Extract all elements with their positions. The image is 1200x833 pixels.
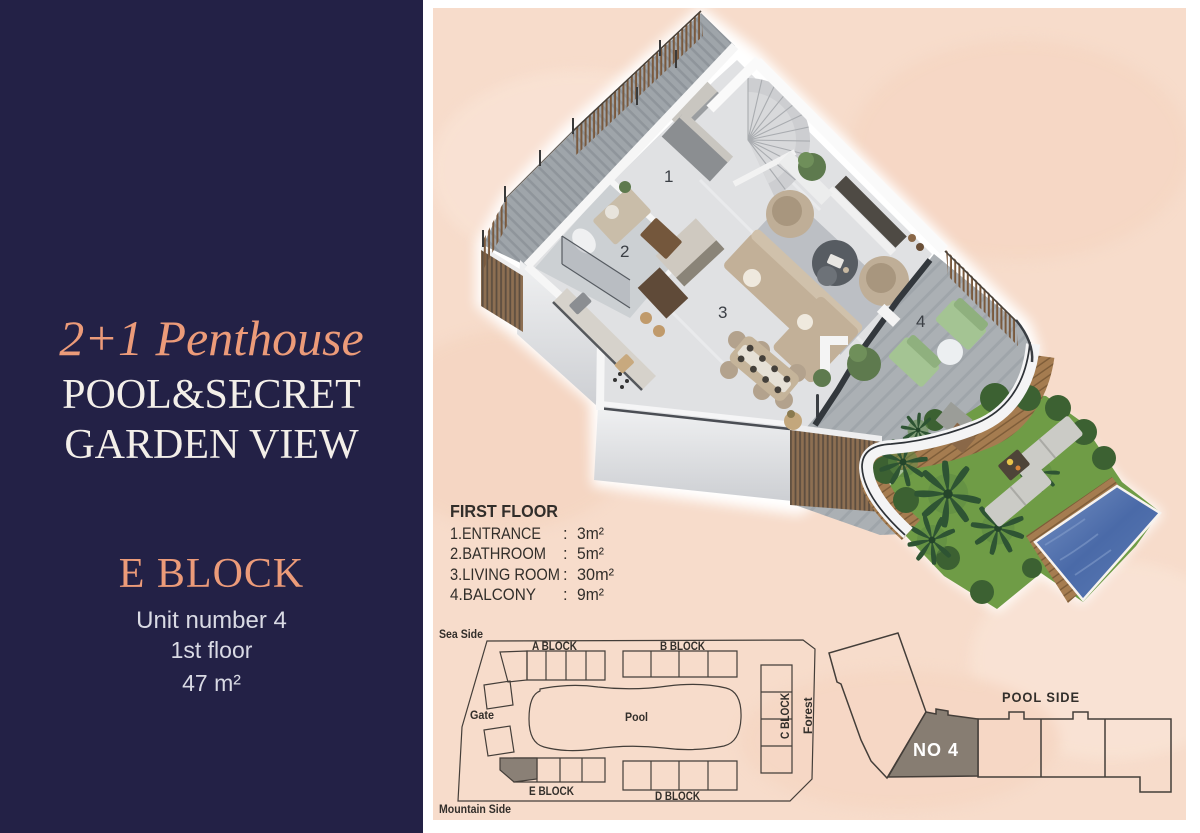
svg-text:NO 4: NO 4	[913, 740, 959, 760]
svg-text:4.BALCONY: 4.BALCONY	[450, 586, 536, 604]
svg-text::: :	[563, 525, 568, 543]
svg-text:B BLOCK: B BLOCK	[660, 641, 706, 653]
svg-text:9m²: 9m²	[577, 586, 604, 604]
svg-text:Forest: Forest	[801, 697, 815, 734]
svg-text:3.LIVING ROOM: 3.LIVING ROOM	[450, 566, 560, 584]
svg-text:1: 1	[664, 167, 673, 186]
svg-text:Gate: Gate	[470, 708, 494, 722]
svg-text::: :	[563, 586, 568, 604]
svg-text::: :	[563, 566, 568, 584]
svg-text:FIRST FLOOR: FIRST FLOOR	[450, 501, 558, 521]
svg-text:Sea Side: Sea Side	[439, 627, 483, 641]
svg-text:E BLOCK: E BLOCK	[529, 786, 575, 798]
svg-text:A BLOCK: A BLOCK	[532, 641, 578, 653]
svg-text:2: 2	[620, 242, 629, 261]
svg-text:3m²: 3m²	[577, 525, 604, 543]
svg-text:3: 3	[718, 303, 727, 322]
svg-text:30m²: 30m²	[577, 566, 614, 584]
svg-text:D BLOCK: D BLOCK	[655, 791, 701, 803]
svg-text:4: 4	[916, 312, 925, 331]
svg-text:POOL SIDE: POOL SIDE	[1002, 689, 1080, 705]
svg-text:5m²: 5m²	[577, 545, 604, 563]
svg-text::: :	[563, 545, 568, 563]
svg-text:C BLOCK: C BLOCK	[780, 692, 792, 739]
svg-text:1.ENTRANCE: 1.ENTRANCE	[450, 525, 541, 543]
svg-text:2.BATHROOM: 2.BATHROOM	[450, 545, 546, 563]
svg-text:Pool: Pool	[625, 710, 648, 724]
svg-text:Mountain Side: Mountain Side	[439, 802, 511, 816]
